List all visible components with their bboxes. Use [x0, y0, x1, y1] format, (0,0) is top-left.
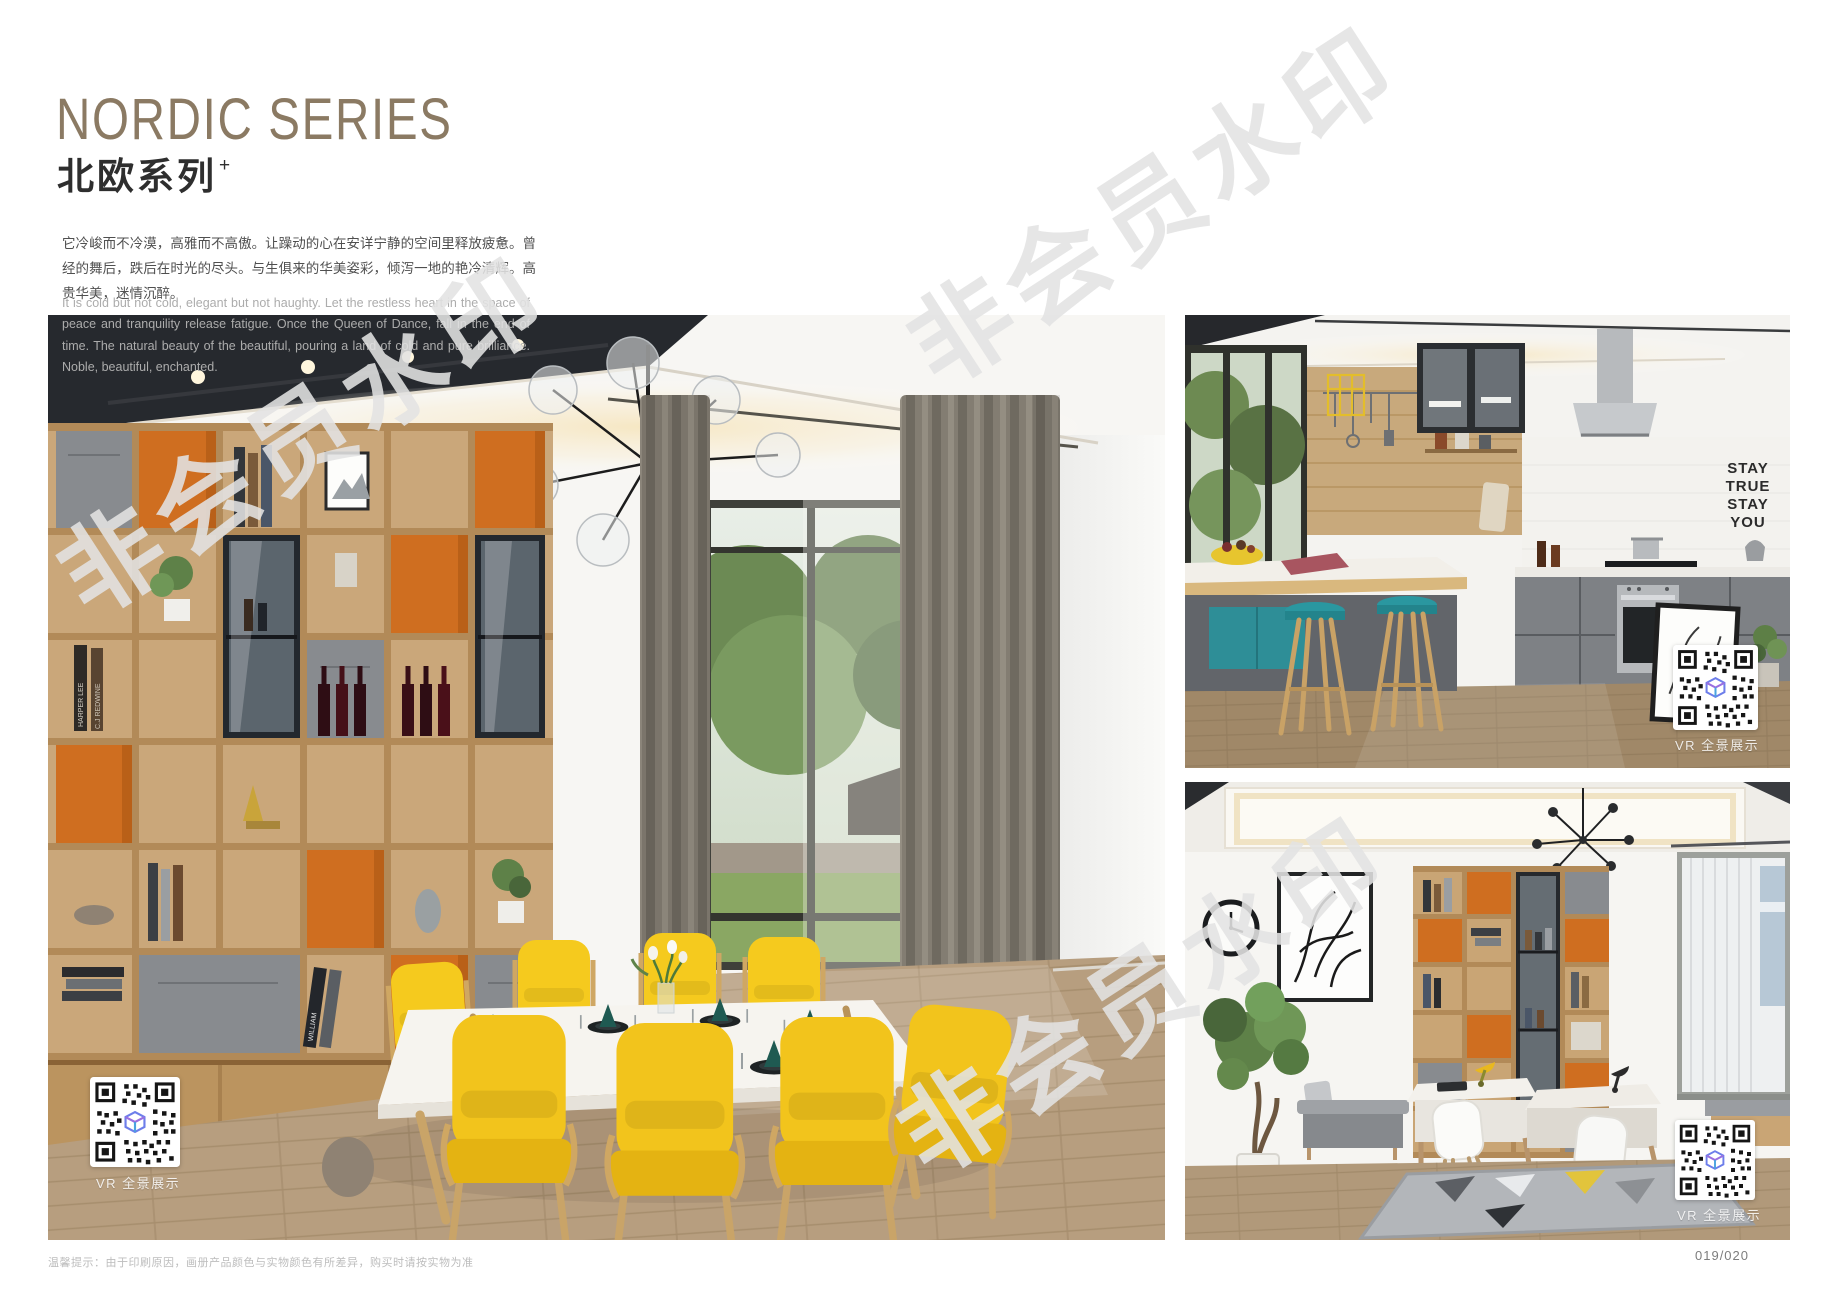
dining-room-photo: HARPER LEE C.J REDWINE WILLIAM	[48, 315, 1165, 1240]
subtitle-text: 北欧系列	[57, 156, 217, 197]
subtitle-plus: +	[219, 155, 233, 176]
study-vr-qr-code	[1675, 1120, 1755, 1200]
page-number: 019/020	[1695, 1248, 1749, 1263]
wall-decal-line: YOU	[1730, 514, 1766, 531]
study-vr-label: VR 全景展示	[1677, 1205, 1761, 1224]
dining-room-scene: HARPER LEE C.J REDWINE WILLIAM	[48, 315, 1165, 1240]
study-ceiling	[1185, 782, 1790, 852]
dining-vr-label: VR 全景展示	[96, 1173, 180, 1192]
abstract-art-frame	[1279, 874, 1371, 1000]
footer-note: 温馨提示：由于印刷原因，画册产品颜色与实物颜色有所差异，购买时请按实物为准	[48, 1254, 474, 1270]
upper-glass-cabinet	[1417, 343, 1525, 433]
wall-decal-line: STAY	[1727, 460, 1769, 477]
book-spine-label: C.J REDWINE	[95, 683, 102, 729]
kitchen-photo: STAY TRUE STAY YOU	[1185, 315, 1790, 768]
display-cabinet	[1516, 872, 1560, 1106]
book-spine-label: HARPER LEE	[78, 682, 85, 727]
wall-decal-line: STAY	[1727, 496, 1769, 513]
page-subtitle: 北欧系列+	[57, 146, 233, 200]
intro-paragraph-en: It is cold but not cold, elegant but not…	[62, 293, 530, 378]
kitchen-vr-label: VR 全景展示	[1675, 735, 1759, 754]
page-title: NORDIC SERIES	[56, 86, 453, 153]
dining-vr-qr-code	[90, 1077, 180, 1167]
wall-clock	[1205, 902, 1257, 954]
catalog-page: HARPER LEE C.J REDWINE WILLIAM	[0, 0, 1836, 1307]
kitchen-vr-qr-code	[1673, 645, 1758, 730]
study-room-photo: VR 全景展示	[1185, 782, 1790, 1240]
wall-decal-text: STAY TRUE STAY YOU	[1726, 460, 1771, 531]
wall-decal-line: TRUE	[1726, 478, 1771, 495]
